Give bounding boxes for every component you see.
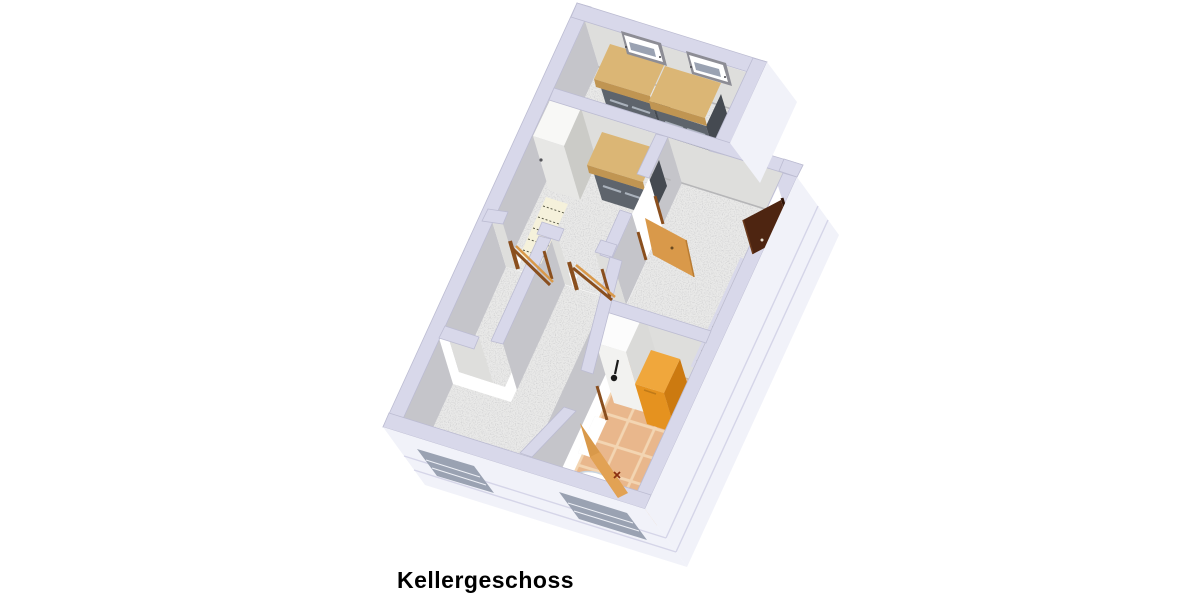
- freezer-handle: [539, 158, 542, 161]
- door-handle: [761, 239, 764, 242]
- window-latch: [690, 66, 692, 68]
- window-latch: [724, 76, 726, 78]
- thermometer-bulb-icon: [611, 375, 617, 381]
- floorplan-canvas[interactable]: Kellergeschoss: [0, 0, 1200, 600]
- door-handle: [671, 247, 674, 250]
- window-latch: [625, 46, 627, 48]
- floor-title: Kellergeschoss: [397, 567, 574, 593]
- window-latch: [659, 56, 661, 58]
- floorplan-viewport[interactable]: Kellergeschoss: [0, 0, 1200, 600]
